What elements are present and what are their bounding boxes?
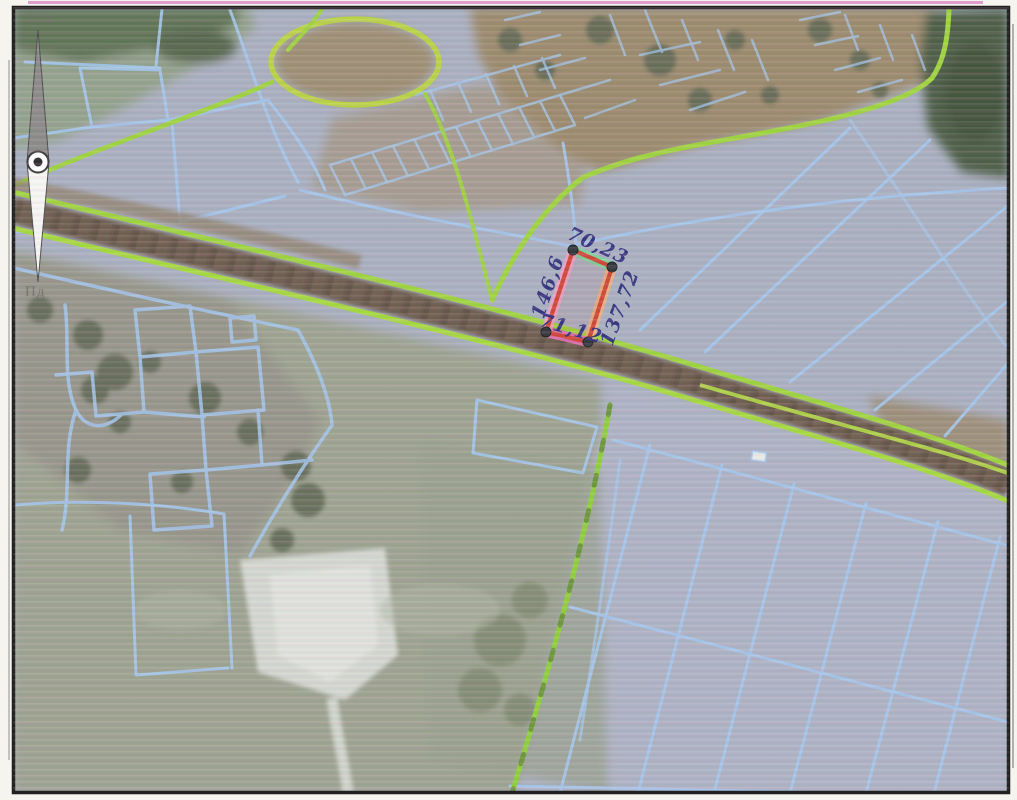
tree-clump [153,29,237,63]
scanned-cadastral-map-page: 70,23 146,6 137,72 71,12 ПН Пд [0,0,1017,800]
map-content [13,7,1012,793]
brown-field-in-loop [275,22,435,102]
small-building [751,451,766,462]
compass-hub-center [34,158,43,167]
vertex-dot [541,327,551,337]
vertex-dot [583,337,593,347]
forest-core [945,42,1005,142]
vertex-dot [568,245,578,255]
scan-edge-artifact [8,60,10,760]
map-image [0,0,1017,800]
vertex-dot [607,262,617,272]
